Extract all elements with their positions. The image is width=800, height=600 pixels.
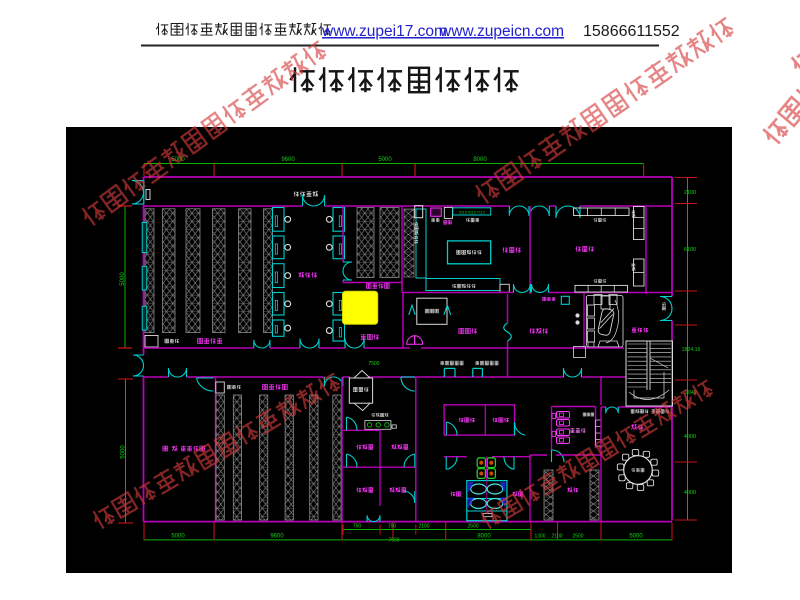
svg-text:www.zupeicn.com: www.zupeicn.com [439,23,564,40]
svg-text:7500: 7500 [368,361,379,367]
svg-text:2500: 2500 [572,534,583,540]
svg-text:7600: 7600 [388,538,399,544]
svg-text:1300: 1300 [534,534,545,540]
svg-text:4000: 4000 [684,490,696,496]
svg-text:5000: 5000 [378,157,392,163]
svg-text:1824.16: 1824.16 [682,347,701,353]
svg-text:750: 750 [388,524,397,530]
svg-text:2100: 2100 [551,534,562,540]
svg-text:8000: 8000 [477,534,491,540]
svg-text:6100: 6100 [684,247,696,253]
svg-text:9600: 9600 [281,157,295,163]
svg-text:2100: 2100 [684,190,696,196]
svg-text:5000: 5000 [121,445,127,459]
svg-text:9115-9113-7113: 9115-9113-7113 [459,210,485,214]
svg-text:750: 750 [353,524,362,530]
svg-text:2100: 2100 [418,524,429,530]
svg-text:8000: 8000 [473,157,487,163]
svg-text:4000: 4000 [684,434,696,440]
svg-text:5000: 5000 [120,272,126,286]
svg-text:5000: 5000 [629,534,643,540]
svg-text:15866611552: 15866611552 [583,23,680,40]
svg-text:9600: 9600 [270,534,284,540]
svg-text:www.zupei17.com: www.zupei17.com [321,23,447,40]
svg-text:5000: 5000 [171,534,185,540]
svg-text:2500: 2500 [467,524,478,530]
